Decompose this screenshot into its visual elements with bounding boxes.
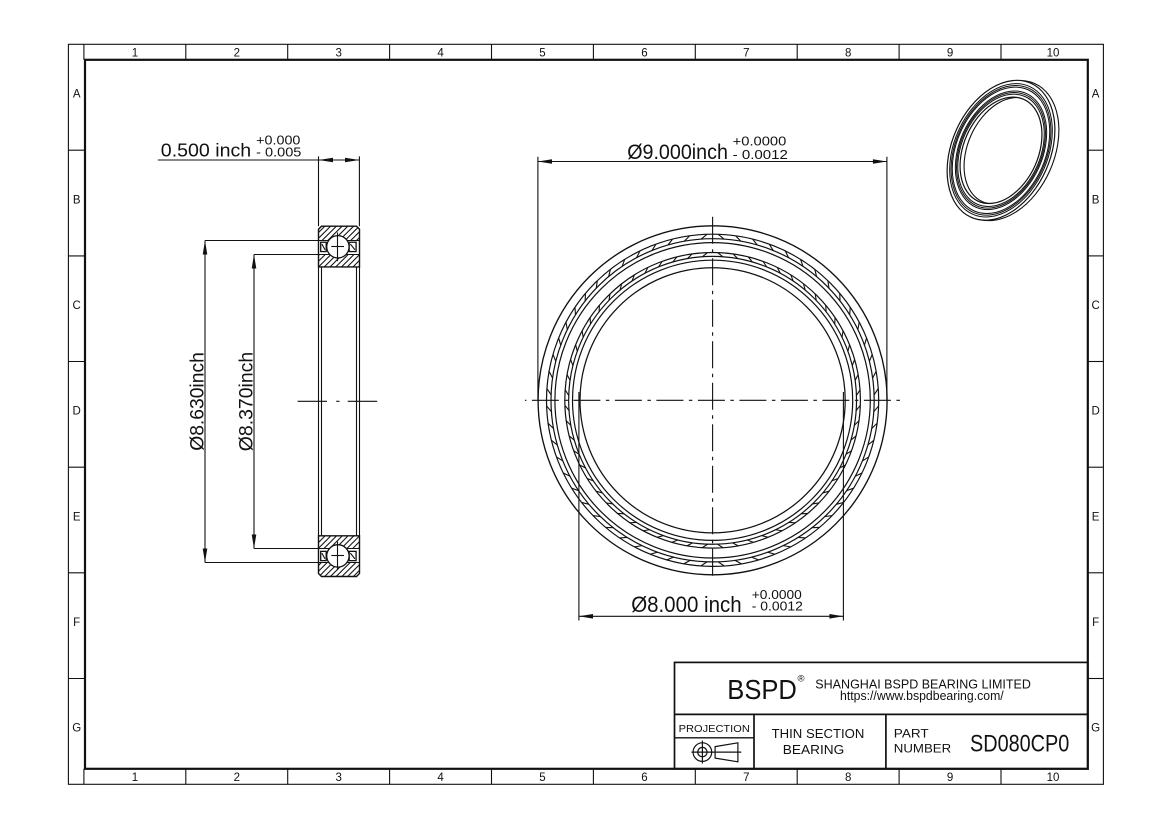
svg-text:B: B xyxy=(1092,194,1100,206)
svg-text:C: C xyxy=(1091,300,1099,312)
svg-text:9: 9 xyxy=(947,47,953,59)
svg-text:F: F xyxy=(73,617,80,629)
svg-text:G: G xyxy=(1091,723,1100,735)
svg-text:BEARING: BEARING xyxy=(783,743,844,757)
svg-text:D: D xyxy=(73,406,81,418)
svg-text:F: F xyxy=(1092,617,1099,629)
svg-text:B: B xyxy=(73,194,81,206)
svg-text:7: 7 xyxy=(743,47,749,59)
svg-text:0.500 inch: 0.500 inch xyxy=(161,141,251,161)
svg-text:PART: PART xyxy=(894,729,929,741)
svg-text:G: G xyxy=(72,723,81,735)
svg-text:8: 8 xyxy=(845,772,851,784)
svg-text:A: A xyxy=(1092,89,1100,101)
svg-text:D: D xyxy=(1091,406,1099,418)
svg-text:- 0.0012: - 0.0012 xyxy=(733,147,788,162)
svg-text:C: C xyxy=(73,300,81,312)
svg-text:E: E xyxy=(73,511,81,523)
svg-text:SD080CP0: SD080CP0 xyxy=(970,730,1069,757)
svg-text:3: 3 xyxy=(335,47,341,59)
svg-text:®: ® xyxy=(798,674,805,685)
svg-text:Ø8.000 inch: Ø8.000 inch xyxy=(631,592,741,617)
svg-text:1: 1 xyxy=(132,47,138,59)
svg-text:5: 5 xyxy=(539,47,545,59)
svg-text:3: 3 xyxy=(335,772,341,784)
svg-text:Ø9.000inch: Ø9.000inch xyxy=(627,140,728,164)
svg-text:THIN SECTION: THIN SECTION xyxy=(772,727,865,741)
svg-text:A: A xyxy=(73,89,81,101)
svg-text:2: 2 xyxy=(234,772,240,784)
svg-text:7: 7 xyxy=(743,772,749,784)
svg-text:E: E xyxy=(1092,511,1100,523)
svg-text:2: 2 xyxy=(234,47,240,59)
svg-text:4: 4 xyxy=(437,47,444,59)
svg-text:5: 5 xyxy=(539,772,545,784)
svg-text:https://www.bspdbearing.com/: https://www.bspdbearing.com/ xyxy=(840,689,1004,703)
svg-text:10: 10 xyxy=(1047,772,1060,784)
svg-text:6: 6 xyxy=(641,47,647,59)
svg-text:1: 1 xyxy=(132,772,138,784)
svg-text:8: 8 xyxy=(845,47,851,59)
svg-text:BSPD: BSPD xyxy=(727,674,797,705)
svg-text:Ø8.630inch: Ø8.630inch xyxy=(188,352,209,451)
svg-text:4: 4 xyxy=(437,772,444,784)
svg-text:- 0.005: - 0.005 xyxy=(256,146,301,160)
svg-text:6: 6 xyxy=(641,772,647,784)
svg-text:10: 10 xyxy=(1047,47,1060,59)
svg-text:PROJECTION: PROJECTION xyxy=(679,723,750,735)
svg-text:- 0.0012: - 0.0012 xyxy=(752,599,803,614)
svg-text:NUMBER: NUMBER xyxy=(894,744,951,756)
svg-text:Ø8.370inch: Ø8.370inch xyxy=(237,352,258,451)
svg-text:9: 9 xyxy=(947,772,953,784)
